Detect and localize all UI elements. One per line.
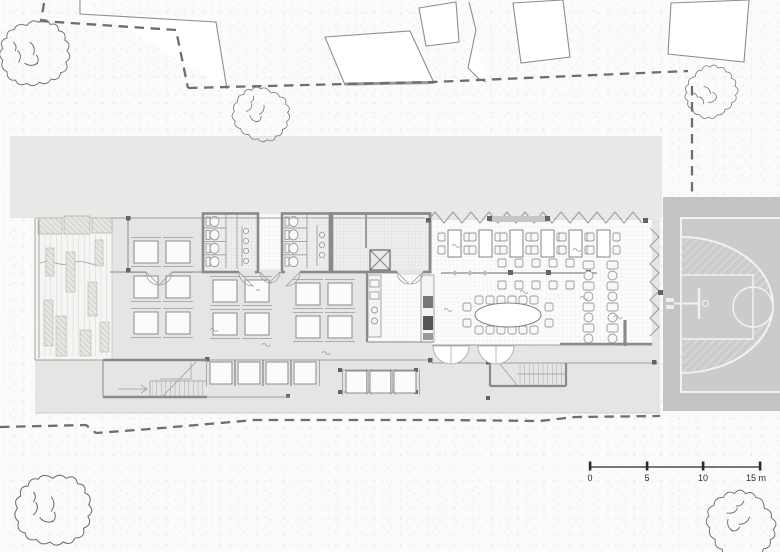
column-node — [486, 396, 490, 400]
toilet-icon — [206, 257, 219, 267]
toilet-icon — [206, 230, 219, 240]
classroom-table — [325, 313, 355, 342]
column-node — [487, 216, 492, 221]
counter-post — [546, 270, 551, 275]
neighbor-building-outline — [513, 0, 570, 63]
kitchen-sink-icon — [372, 318, 378, 324]
basketball-court — [666, 218, 780, 392]
outdoor-table — [291, 360, 320, 386]
classroom-table — [293, 313, 323, 342]
roof-canopy — [10, 136, 662, 218]
kitchen-appliance — [423, 316, 433, 330]
neighbor-buildings — [80, 0, 749, 89]
oval-table — [475, 303, 541, 327]
outdoor-table — [367, 369, 396, 395]
scale-label: 15 m — [746, 473, 766, 483]
classroom-table — [131, 309, 161, 338]
planter-box — [64, 216, 90, 234]
column-node — [426, 218, 431, 223]
sink-icons — [319, 232, 324, 257]
kitchen-counter-east — [421, 275, 434, 342]
corridor-floor — [258, 214, 282, 272]
column-node — [652, 360, 657, 365]
scale-label: 5 — [644, 473, 649, 483]
toilet-icon — [206, 243, 219, 253]
column-node — [545, 216, 550, 221]
scale-tick — [646, 462, 649, 471]
door-opening — [397, 270, 423, 275]
tree-sketch — [0, 20, 70, 86]
kitchen-appliance — [423, 333, 433, 340]
planter-box — [38, 218, 62, 234]
scale-label: 10 — [698, 473, 708, 483]
column-node — [126, 268, 131, 273]
boundary-dashed-line — [0, 416, 660, 433]
outdoor-table — [235, 360, 264, 386]
neighbor-building-outline — [419, 2, 459, 46]
outdoor-table — [343, 369, 372, 395]
scale-bar: 0 5 10 15 m — [587, 462, 766, 484]
kitchen-fixture — [370, 280, 379, 287]
scale-tick — [589, 462, 592, 471]
classroom-table — [131, 238, 161, 267]
tree-sketch — [698, 481, 780, 552]
classroom-table — [325, 280, 355, 309]
neighbor-building-outline — [80, 0, 227, 89]
column-node — [126, 216, 131, 221]
outdoor-table — [263, 360, 292, 386]
classroom-table — [163, 238, 193, 267]
neighbor-building-outline — [668, 0, 749, 62]
scale-tick — [702, 462, 705, 471]
column-node — [658, 290, 663, 295]
scale-label: 0 — [587, 473, 592, 483]
boundary-dashed-line — [188, 71, 688, 88]
planter-box — [92, 218, 112, 233]
neighbor-building-outline — [325, 31, 434, 85]
door-opening — [146, 270, 172, 275]
tree-sketch — [675, 56, 746, 126]
toilet-icon — [285, 243, 298, 253]
classroom-table — [242, 310, 272, 339]
wall-beam — [489, 216, 548, 222]
neighbor-building-outline — [468, 2, 486, 82]
pergola-post — [338, 368, 342, 372]
outdoor-table — [391, 369, 420, 395]
column-node — [428, 358, 433, 363]
toilet-icon — [285, 230, 298, 240]
green-wall-garden — [35, 216, 112, 360]
stair-treads — [152, 381, 205, 397]
classroom-table — [242, 277, 272, 306]
kitchen-sink-icon — [372, 307, 378, 313]
toilet-icon — [285, 257, 298, 267]
classroom-table — [163, 309, 193, 338]
pergola — [338, 368, 420, 395]
classroom-table — [293, 280, 323, 309]
classroom-table — [131, 273, 161, 302]
outdoor-table — [207, 360, 236, 386]
counter-post — [508, 270, 513, 275]
classroom-table — [210, 310, 240, 339]
scale-tick — [759, 462, 762, 471]
stair-treads — [518, 364, 565, 385]
classroom-table — [210, 277, 240, 306]
column-node — [643, 218, 648, 223]
kitchen-appliance — [423, 296, 433, 308]
site-plan-drawing: 0 5 10 15 m — [0, 0, 780, 552]
door-opening — [260, 270, 280, 275]
pergola-post — [338, 390, 342, 394]
kitchen-fixture — [370, 292, 379, 299]
tree-sketch — [7, 464, 100, 552]
